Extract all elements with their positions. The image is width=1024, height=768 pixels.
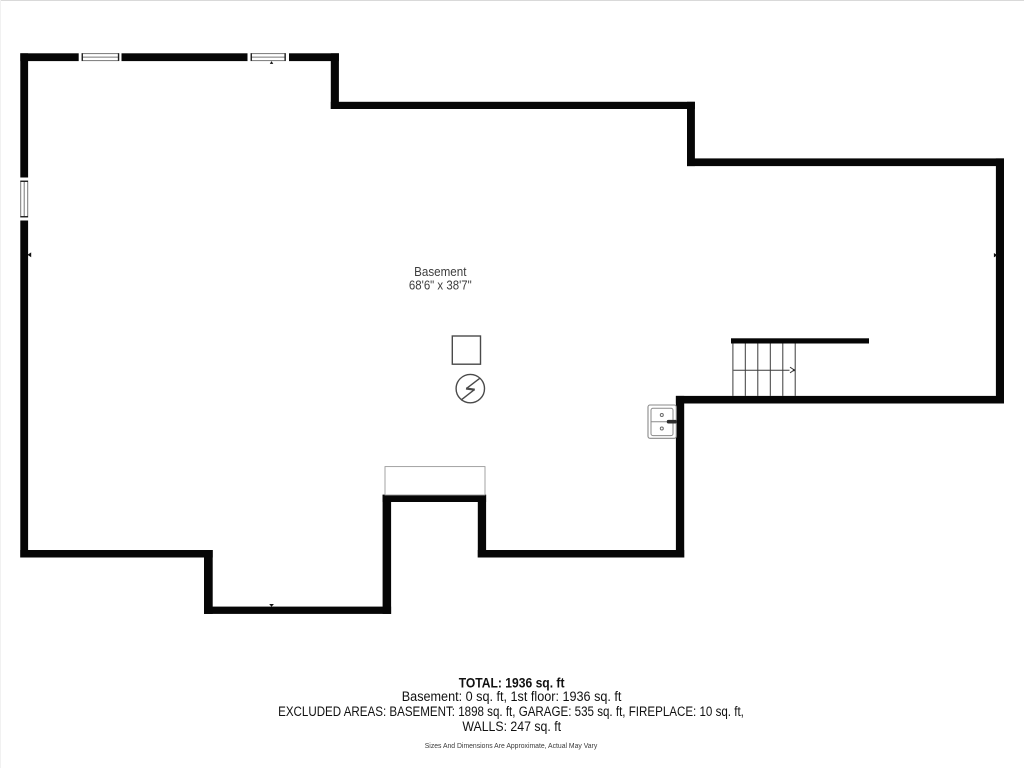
- svg-text:EXCLUDED AREAS: BASEMENT: 1898: EXCLUDED AREAS: BASEMENT: 1898 sq. ft, G…: [278, 704, 744, 719]
- svg-text:WALLS: 247 sq. ft: WALLS: 247 sq. ft: [462, 719, 561, 734]
- svg-text:Basement: 0 sq. ft, 1st floor:: Basement: 0 sq. ft, 1st floor: 1936 sq. …: [402, 689, 622, 704]
- svg-text:Sizes And Dimensions Are Appro: Sizes And Dimensions Are Approximate, Ac…: [425, 743, 598, 750]
- svg-text:68'6" x 38'7": 68'6" x 38'7": [409, 277, 472, 292]
- svg-text:TOTAL: 1936 sq. ft: TOTAL: 1936 sq. ft: [459, 674, 565, 690]
